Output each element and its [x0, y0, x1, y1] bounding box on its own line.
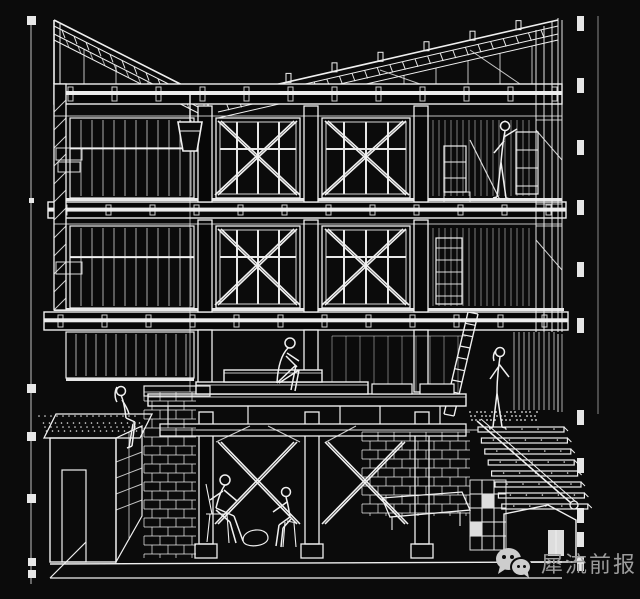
fixtures-part: [491, 411, 493, 413]
stair-flight-part: [525, 439, 527, 441]
stage-platform-part: [196, 382, 368, 394]
fixtures-part: [531, 419, 533, 421]
floor-slabs-part: [54, 91, 562, 95]
left-annex-box-part: [82, 430, 84, 432]
left-annex-box-part: [92, 426, 94, 428]
guide-marks-part: [28, 570, 36, 578]
left-annex-box-part: [112, 430, 114, 432]
fixtures-part: [524, 419, 526, 421]
stair-flight-part: [574, 494, 576, 496]
fixtures-part: [529, 411, 531, 413]
fixtures-part: [516, 419, 518, 421]
left-annex-box-part: [97, 422, 99, 424]
left-annex-box-part: [50, 426, 52, 428]
left-annex-box-part: [56, 426, 58, 428]
left-annex-box-part: [86, 415, 88, 417]
stair-flight-part: [542, 494, 544, 496]
left-annex-box-part: [109, 422, 111, 424]
left-annex-box-part: [56, 415, 58, 417]
left-annex-box-part: [92, 415, 94, 417]
window-bays-part: [278, 230, 280, 304]
stair-flight-part: [521, 428, 523, 430]
left-annex-box-part: [103, 422, 105, 424]
stair-flight-part: [515, 461, 517, 463]
window-bays-part: [343, 122, 345, 194]
left-annex-box-part: [62, 426, 64, 428]
guide-marks-part: [577, 16, 584, 31]
left-annex-box-part: [115, 422, 117, 424]
stage-platform-part: [420, 384, 454, 394]
fixtures-part: [489, 415, 491, 417]
stair-flight-part: [567, 472, 569, 474]
left-annex-box-part: [55, 422, 57, 424]
stair-flight-part: [551, 472, 553, 474]
stage-platform-part: [372, 384, 412, 394]
left-annex-box-part: [44, 426, 46, 428]
stair-flight-part: [496, 450, 498, 452]
left-annex-box-part: [44, 415, 46, 417]
window-bays-part: [220, 256, 296, 258]
walls-and-columns-part: [304, 106, 318, 202]
window-bays-part: [326, 256, 406, 258]
fixtures-part: [521, 411, 523, 413]
fixtures-part: [509, 419, 511, 421]
stair-flight-part: [499, 461, 501, 463]
left-annex-box-part: [104, 426, 106, 428]
left-annex-box-part: [86, 426, 88, 428]
fixtures-part: [479, 419, 481, 421]
left-annex-box-part: [52, 430, 54, 432]
guide-marks-part: [577, 262, 584, 277]
fixtures-part: [506, 411, 508, 413]
guide-marks-part: [577, 200, 584, 215]
left-annex-box-part: [128, 426, 130, 428]
stair-flight-part: [560, 450, 562, 452]
guide-marks-part: [27, 16, 36, 25]
left-annex-box-part: [70, 430, 72, 432]
fixtures-part: [475, 419, 477, 421]
wechat-bubble-small: [512, 559, 530, 575]
guide-marks-part: [29, 198, 34, 203]
stair-flight-part: [557, 439, 559, 441]
left-annex-box-part: [104, 415, 106, 417]
stair-flight-part: [493, 439, 495, 441]
left-annex-box-part: [58, 430, 60, 432]
left-annex-box-part: [80, 415, 82, 417]
fixtures-part: [534, 415, 536, 417]
left-annex-box-part: [67, 422, 69, 424]
left-annex-box-part: [61, 422, 63, 424]
stair-flight-part: [553, 428, 555, 430]
fixtures-part: [515, 415, 517, 417]
fixtures-part: [510, 411, 512, 413]
walls-and-columns-part: [198, 106, 212, 202]
left-annex-box-part: [122, 426, 124, 428]
left-annex-box-part: [88, 430, 90, 432]
stair-flight-part: [541, 439, 543, 441]
left-annex-box-part: [134, 415, 136, 417]
left-annex-box-part: [62, 415, 64, 417]
stair-flight-part: [519, 472, 521, 474]
fixtures-part: [536, 411, 538, 413]
stage-platform-part: [224, 370, 322, 382]
left-annex-box-part: [43, 422, 45, 424]
left-annex-box-part: [76, 430, 78, 432]
stair-flight-part: [470, 522, 482, 536]
left-annex-box-part: [73, 422, 75, 424]
left-annex-box-part: [74, 426, 76, 428]
window-bays-part: [66, 378, 194, 381]
left-annex-box-part: [49, 422, 51, 424]
fixtures-part: [535, 419, 537, 421]
guide-marks-part: [577, 508, 584, 523]
walls-and-columns-part: [54, 84, 66, 310]
stair-flight-part: [482, 494, 494, 508]
stair-flight-part: [509, 439, 511, 441]
fixtures-part: [474, 415, 476, 417]
stair-flight-part: [537, 428, 539, 430]
left-annex-box-part: [121, 422, 123, 424]
fixtures-part: [525, 411, 527, 413]
fixtures-part: [471, 419, 473, 421]
guide-marks-part: [577, 318, 584, 333]
fixtures-part: [514, 411, 516, 413]
stair-flight-part: [529, 505, 531, 507]
window-bays-part: [278, 122, 280, 194]
left-annex-box-part: [79, 422, 81, 424]
stair-flight-part: [510, 494, 512, 496]
left-annex-box-part: [128, 415, 130, 417]
left-annex-box-part: [91, 422, 93, 424]
fixtures-part: [470, 415, 472, 417]
walls-and-columns-part: [198, 220, 212, 312]
left-annex-box-part: [50, 415, 52, 417]
left-annex-box-part: [106, 430, 108, 432]
left-annex-box-part: [116, 415, 118, 417]
fixtures-part: [485, 415, 487, 417]
fixtures-part: [519, 415, 521, 417]
stair-flight-part: [513, 505, 515, 507]
watermark-text: 犀流前报: [541, 547, 637, 579]
left-annex-box-part: [98, 415, 100, 417]
guide-marks-part: [27, 494, 36, 503]
left-annex-box-part: [46, 430, 48, 432]
left-annex-box-part: [139, 422, 141, 424]
stair-flight-part: [544, 450, 546, 452]
fixtures-part: [505, 419, 507, 421]
fixtures-part: [476, 411, 478, 413]
window-bays-part: [220, 148, 296, 150]
fixtures-part: [504, 415, 506, 417]
left-annex-box-part: [74, 415, 76, 417]
guide-marks-part: [27, 384, 36, 393]
left-annex-box-part: [118, 430, 120, 432]
stair-flight-part: [526, 494, 528, 496]
floor-slabs-part: [48, 208, 566, 212]
watermark: 犀流前报: [496, 546, 637, 580]
walls-and-columns-part: [414, 106, 428, 202]
fixtures-part: [526, 415, 528, 417]
window-bays-part: [236, 230, 238, 304]
stair-flight-part: [570, 483, 572, 485]
left-annex-box-part: [38, 415, 40, 417]
fixtures-part: [480, 411, 482, 413]
stair-flight-part: [522, 483, 524, 485]
fixtures-part: [520, 419, 522, 421]
fixtures-part: [511, 415, 513, 417]
left-annex-box-part: [85, 422, 87, 424]
section-drawing: [0, 0, 640, 599]
left-annex-box-part: [124, 430, 126, 432]
left-annex-box-part: [136, 430, 138, 432]
walls-and-columns-part: [304, 220, 318, 312]
window-bays-part: [343, 230, 345, 304]
left-annex-box-part: [68, 415, 70, 417]
window-bays-part: [236, 122, 238, 194]
fixtures-part: [490, 419, 492, 421]
left-annex-box-part: [64, 430, 66, 432]
stair-flight-part: [503, 472, 505, 474]
left-annex-box-part: [122, 415, 124, 417]
stair-flight-part: [561, 505, 563, 507]
guide-marks-part: [27, 432, 36, 441]
floor-slabs-part: [44, 318, 568, 322]
fixtures-part: [481, 415, 483, 417]
guide-marks-part: [577, 532, 584, 547]
left-annex-box-part: [110, 426, 112, 428]
fixtures-part: [484, 411, 486, 413]
guide-marks-part: [577, 140, 584, 155]
left-annex-box-part: [80, 426, 82, 428]
stair-flight-part: [558, 494, 560, 496]
guide-marks-part: [28, 558, 36, 566]
screenshot-canvas: 犀流前报: [0, 0, 640, 599]
guide-marks-part: [577, 410, 584, 425]
left-annex-box-part: [110, 415, 112, 417]
left-annex-box-part: [94, 430, 96, 432]
fixtures-part: [469, 411, 471, 413]
stair-flight-part: [538, 483, 540, 485]
stair-flight-part: [563, 461, 565, 463]
window-bays-part: [387, 122, 389, 194]
left-annex-box-part: [100, 430, 102, 432]
walls-and-columns-part: [414, 220, 428, 312]
fixtures-part: [530, 415, 532, 417]
left-annex-box-part: [68, 426, 70, 428]
window-bays-part: [387, 230, 389, 304]
fixtures-part: [486, 419, 488, 421]
left-annex-box-part: [98, 426, 100, 428]
left-annex-box-part: [116, 426, 118, 428]
left-annex-box-part: [127, 422, 129, 424]
wechat-icon: [496, 546, 534, 580]
stair-flight-part: [547, 461, 549, 463]
window-bays-part: [326, 148, 406, 150]
stair-flight-part: [528, 450, 530, 452]
guide-marks-part: [577, 78, 584, 93]
fixtures-part: [496, 415, 498, 417]
